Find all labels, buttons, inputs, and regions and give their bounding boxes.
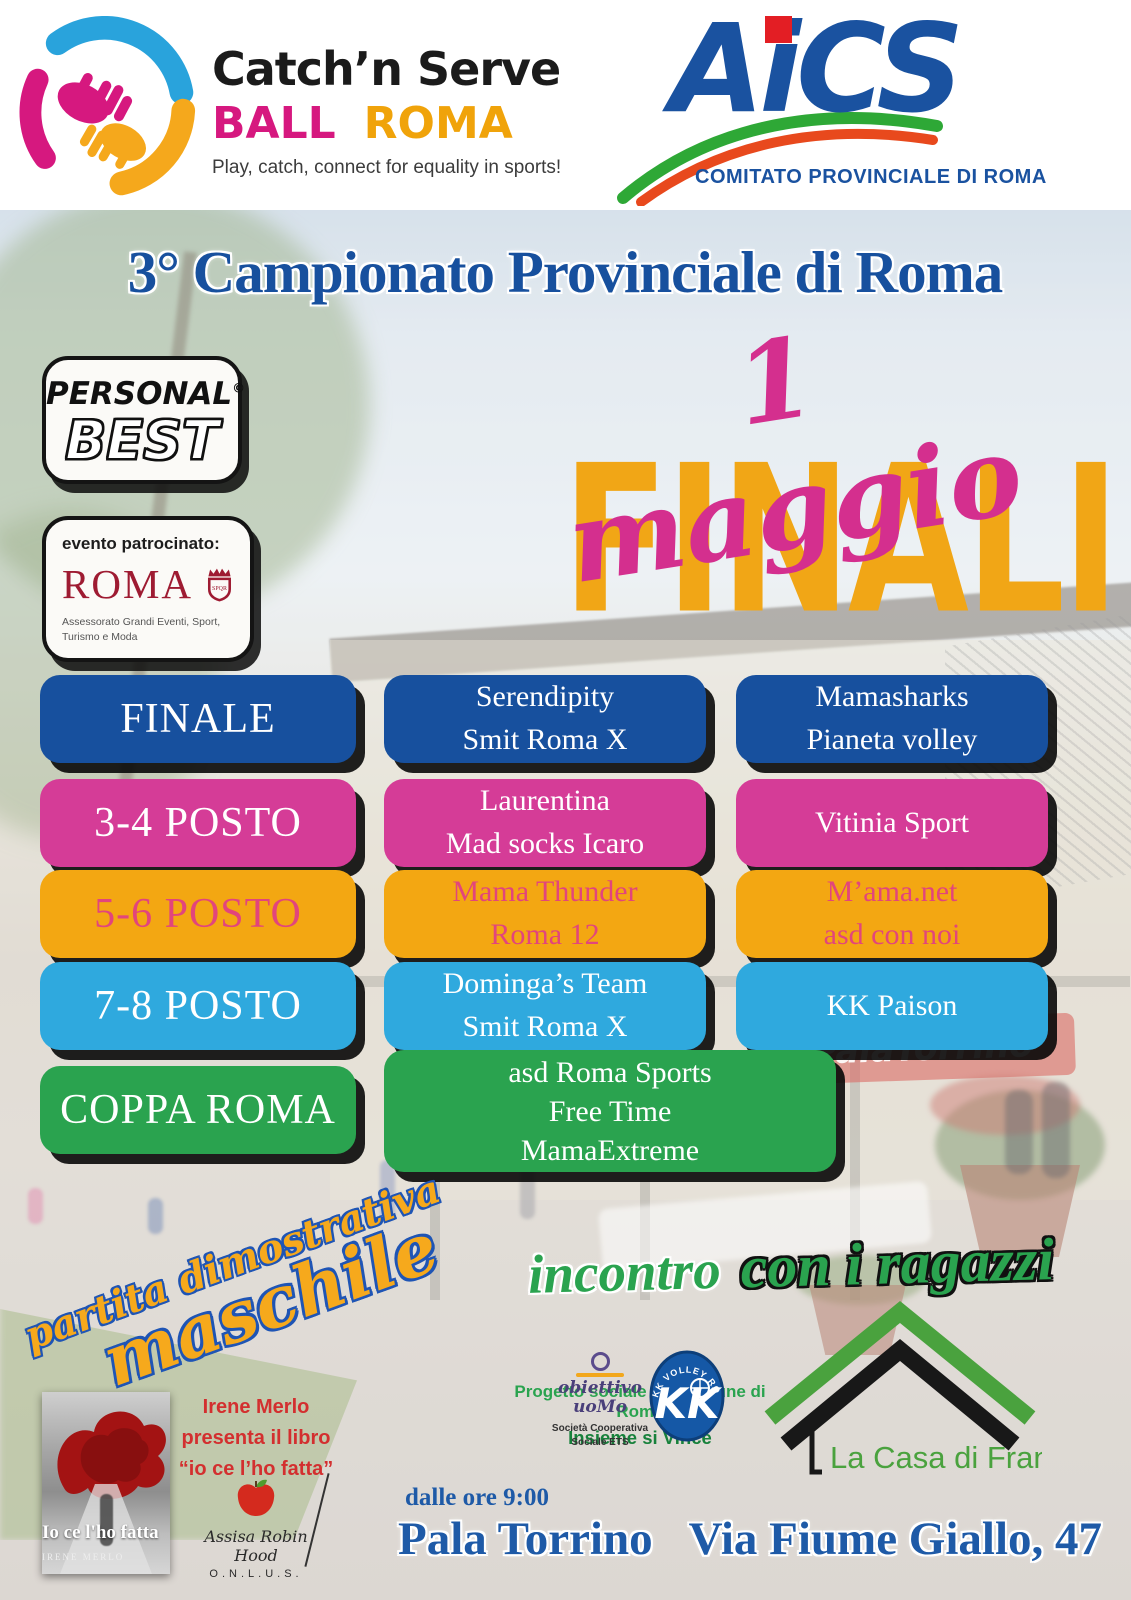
bracket-match-cell: KK Paison <box>736 962 1048 1050</box>
bracket-match-cell: Mama ThunderRoma 12 <box>384 870 706 958</box>
personal-best-line1: PERSONAL© <box>46 376 238 412</box>
event-poster: PalaTorrino <box>0 0 1131 1600</box>
uomo-text: uoMo <box>544 1398 656 1417</box>
aics-red-dot <box>765 16 792 43</box>
bracket-label-5-6: 5-6 POSTO <box>40 870 356 958</box>
patronage-badge: evento patrocinato: ROMA SPQR Assessorat… <box>42 516 254 662</box>
catchn-serve-wordmark: Catch’n Serve BALL ROMA Play, catch, con… <box>212 42 561 198</box>
brand-tagline: Play, catch, connect for equality in spo… <box>212 157 561 179</box>
book-title: Io ce l'ho fatta <box>42 1522 170 1544</box>
copyright-mark: © <box>232 382 245 397</box>
venue-name: Pala Torrino <box>398 1512 653 1566</box>
bracket-label-finale: FINALE <box>40 675 356 763</box>
robin-hood-onlus-logo: Assisa Robin Hood O.N.L.U.S. <box>186 1476 326 1580</box>
svg-text:KK: KK <box>654 1379 723 1428</box>
personal-best-badge: PERSONAL© BEST <box>42 356 242 484</box>
aics-acronym: AiCS <box>670 8 959 130</box>
bracket-match-cell: LaurentinaMad socks Icaro <box>384 779 706 867</box>
bracket-match-cell: Dominga’s TeamSmit Roma X <box>384 962 706 1050</box>
figure-arms-icon <box>576 1373 624 1377</box>
meeting-word1: incontro <box>527 1238 721 1306</box>
venue-address: Via Fiume Giallo, 47 <box>689 1512 1102 1566</box>
catchn-serve-ball-logo: Catch’n Serve BALL ROMA Play, catch, con… <box>14 16 561 198</box>
meeting-word2: con i ragazzi <box>740 1225 1055 1302</box>
aics-letter-a: A <box>670 8 759 130</box>
header: Catch’n Serve BALL ROMA Play, catch, con… <box>0 0 1131 210</box>
patronage-caption: Assessorato Grandi Eventi, Sport, Turism… <box>62 615 234 644</box>
event-time: dalle ore 9:00 <box>405 1484 549 1512</box>
obiettivo-caption: Società Cooperativa Sociale ETS <box>544 1422 656 1449</box>
casa-di-franco-logo: La Casa di Franco <box>752 1296 1042 1485</box>
patronage-label: evento patrocinato: <box>62 534 234 554</box>
onlus-suffix: O.N.L.U.S. <box>186 1568 326 1580</box>
bracket-match-cell: MamasharksPianeta volley <box>736 675 1048 763</box>
kk-volley-roma-logo: KK VOLLEY ROMA KK <box>648 1348 726 1449</box>
bracket-label-coppa-roma: COPPA ROMA <box>40 1066 356 1154</box>
brand-ball: BALL <box>212 98 336 149</box>
event-venue: Pala Torrino Via Fiume Giallo, 47 <box>398 1512 1102 1566</box>
svg-text:La Casa di Franco: La Casa di Franco <box>830 1440 1042 1475</box>
obiettivo-uomo-logo: obiettivo uoMo Società Cooperativa Socia… <box>544 1352 656 1449</box>
bracket-match-cell: asd Roma Sports Free Time MamaExtreme <box>384 1050 836 1172</box>
brand-title: Catch’n Serve <box>212 42 561 96</box>
book-cover: Io ce l'ho fatta IRENE MERLO <box>42 1392 170 1574</box>
personal-best-line2: BEST <box>46 414 238 468</box>
bracket-match-cell: SerendipitySmit Roma X <box>384 675 706 763</box>
roma-crest-icon: SPQR <box>205 563 234 605</box>
roma-wordmark: ROMA <box>62 560 193 608</box>
apple-icon <box>234 1476 278 1520</box>
bracket-match-cell: M’ama.netasd con noi <box>736 870 1048 958</box>
figure-head-icon <box>591 1352 610 1371</box>
obiettivo-text: obiettivo <box>544 1379 656 1398</box>
aics-logo: AiCS COMITATO PROVINCIALE DI ROMA <box>615 8 1085 204</box>
bracket-label-7-8: 7-8 POSTO <box>40 962 356 1050</box>
hands-circle-icon <box>14 16 196 198</box>
book-author: IRENE MERLO <box>42 1552 170 1562</box>
book-promo-text: Irene Merlo presenta il libro “io ce l’h… <box>170 1392 342 1485</box>
aics-subtitle: COMITATO PROVINCIALE DI ROMA <box>695 166 1075 189</box>
aics-letters-cs: CS <box>796 8 959 130</box>
bracket-match-cell: Vitinia Sport <box>736 779 1048 867</box>
svg-text:SPQR: SPQR <box>212 586 227 592</box>
bracket-label-3-4: 3-4 POSTO <box>40 779 356 867</box>
brand-roma: ROMA <box>364 98 513 149</box>
